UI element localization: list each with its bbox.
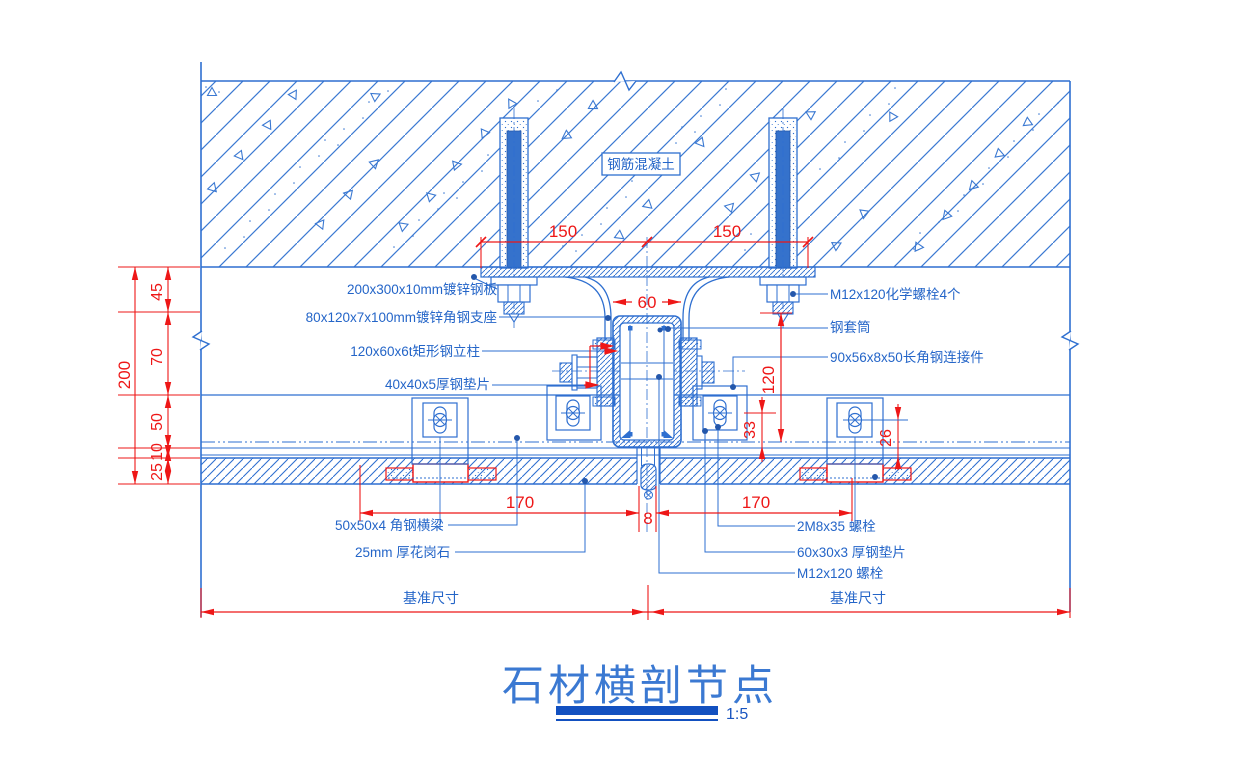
drawing-title: 石材横剖节点 [502, 662, 778, 709]
dim-150-right: 150 [713, 222, 741, 241]
dim-8: 8 [643, 509, 652, 528]
cad-drawing-canvas: 钢筋混凝土 [0, 0, 1236, 770]
label-chem-bolt: M12x120化学螺栓4个 [830, 287, 961, 302]
label-sleeve: 钢套筒 [830, 319, 871, 335]
break-mark-left [193, 331, 209, 350]
dim-150-left: 150 [549, 222, 577, 241]
label-angle-connector: 90x56x8x50长角钢连接件 [830, 349, 984, 365]
label-angle-support: 80x120x7x100mm镀锌角钢支座 [306, 309, 497, 325]
dim-45: 45 [149, 283, 166, 301]
dim-25: 25 [149, 463, 166, 481]
label-washer-40: 40x40x5厚钢垫片 [385, 377, 490, 392]
label-steel-plate: 200x300x10mm镀锌钢板 [347, 281, 498, 297]
dim-120: 120 [759, 366, 778, 394]
dim-50: 50 [149, 413, 166, 431]
label-washer-60: 60x30x3 厚钢垫片 [797, 545, 906, 560]
dimensions: 150 150 60 200 45 70 50 10 25 120 33 [115, 222, 1070, 620]
label-angle-beam: 50x50x4 角钢横梁 [335, 518, 444, 533]
stone-section-detail-drawing: 钢筋混凝土 [0, 0, 1236, 770]
dimension-arrows [132, 267, 1070, 615]
label-bolt-m12: M12x120 螺栓 [797, 566, 884, 581]
dim-33: 33 [742, 421, 759, 439]
label-bolt-2m8: 2M8x35 螺栓 [797, 519, 876, 534]
washer-plate-1 [412, 398, 468, 530]
dim-70: 70 [149, 348, 166, 366]
label-granite: 25mm 厚花岗石 [355, 545, 450, 560]
dim-60: 60 [638, 293, 657, 312]
title-underline-bar [556, 706, 718, 715]
dim-26: 26 [878, 429, 895, 447]
washer-plate-3 [693, 386, 747, 440]
concrete-tag: 钢筋混凝土 [602, 153, 680, 175]
washer-plate-2 [547, 386, 601, 440]
baseline-label-left: 基准尺寸 [403, 590, 459, 606]
concrete-tag-text: 钢筋混凝土 [607, 156, 675, 172]
dim-10: 10 [149, 443, 166, 461]
label-steel-column: 120x60x6t矩形钢立柱 [350, 344, 480, 359]
washer-plate-4 [827, 398, 883, 530]
title-block: 石材横剖节点 1:5 [502, 662, 778, 723]
dim-200: 200 [115, 361, 134, 389]
steel-plate [481, 267, 815, 277]
break-mark-right [1062, 331, 1078, 350]
drawing-scale: 1:5 [726, 706, 748, 723]
dim-170-right: 170 [742, 493, 770, 512]
dim-170-left: 170 [506, 493, 534, 512]
baseline-label-right: 基准尺寸 [830, 590, 886, 606]
steel-column-tube [613, 237, 681, 532]
